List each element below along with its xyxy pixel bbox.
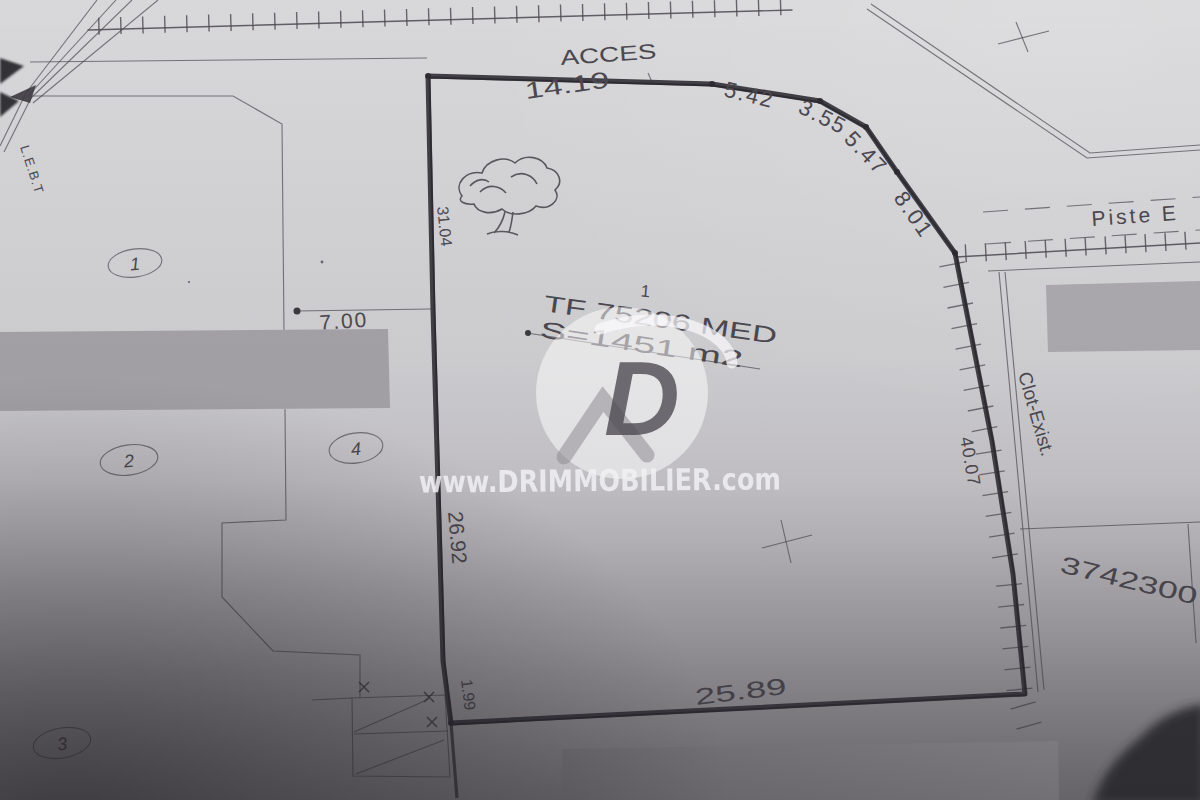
logo-letter: D	[604, 340, 680, 457]
watermark-site-url: www.DRIMMOBILIER.com	[419, 461, 781, 499]
scanned-cadastral-plan: ACCES L.E.B.T 1 2 4	[0, 0, 1200, 800]
